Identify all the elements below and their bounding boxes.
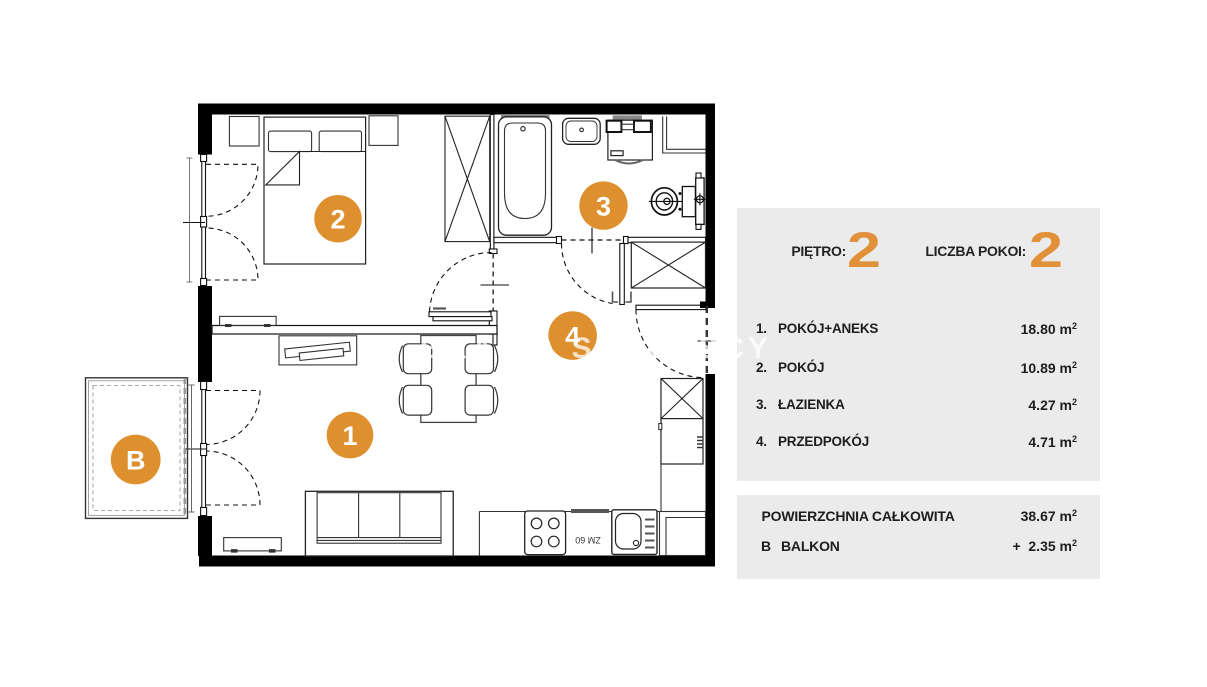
svg-text:3: 3 <box>596 192 611 222</box>
svg-text:1: 1 <box>342 421 357 451</box>
svg-text:ZM 60: ZM 60 <box>575 535 601 545</box>
svg-text:2: 2 <box>330 205 345 235</box>
svg-text:B: B <box>126 445 146 475</box>
